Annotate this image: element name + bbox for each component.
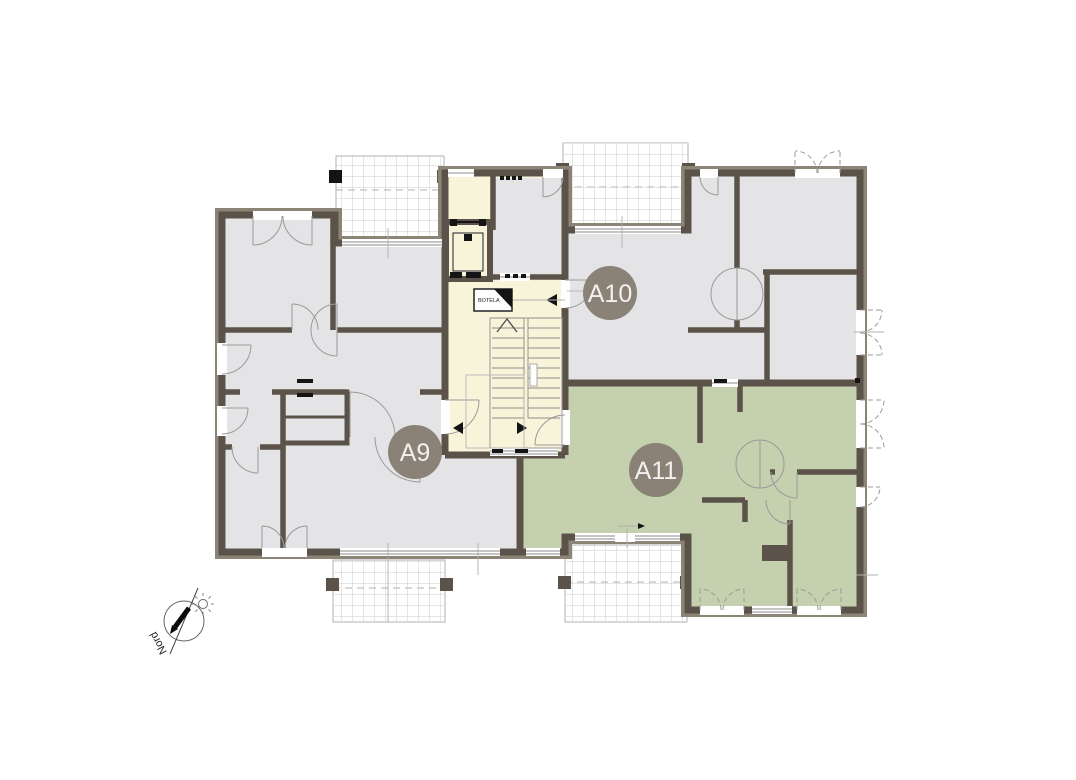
dim-mark bbox=[500, 176, 504, 180]
door-opening bbox=[262, 548, 307, 557]
elevator-sill-mark bbox=[466, 272, 481, 278]
a10-entry-hall bbox=[490, 178, 565, 278]
compass-axis-line bbox=[170, 588, 198, 654]
dim-mark bbox=[297, 379, 313, 383]
door-opening bbox=[253, 211, 312, 220]
door-opening bbox=[441, 400, 450, 434]
apartment-badge-a9[interactable]: A9 bbox=[388, 425, 442, 479]
north-arrow bbox=[175, 608, 189, 627]
balcony-bottom-center bbox=[558, 545, 693, 622]
balcony-post bbox=[440, 578, 453, 591]
north-indicator: Nord bbox=[148, 588, 214, 656]
balcony-top-right bbox=[556, 143, 695, 230]
balcony-grid bbox=[336, 156, 444, 243]
elevator-door-mark bbox=[450, 219, 457, 226]
balcony-top-left bbox=[329, 156, 450, 243]
window bbox=[340, 548, 500, 556]
dim-mark bbox=[505, 274, 510, 278]
dim-mark bbox=[714, 379, 727, 383]
elevator-counterweight bbox=[464, 234, 472, 241]
mailbox-sign: BOTELA bbox=[474, 289, 512, 311]
dim-mark bbox=[506, 176, 510, 180]
apartment-badge-a11[interactable]: A11 bbox=[629, 443, 683, 497]
sign-label: BOTELA bbox=[478, 298, 500, 304]
balcony-grid bbox=[565, 545, 687, 622]
balcony-grid bbox=[333, 560, 445, 622]
door-opening bbox=[795, 169, 840, 178]
dim-mark bbox=[492, 449, 503, 453]
badge-label: A9 bbox=[400, 439, 431, 467]
door-opening bbox=[217, 406, 227, 436]
door-opening bbox=[856, 487, 865, 507]
stair-marker bbox=[530, 364, 537, 386]
elevator-door-mark bbox=[479, 219, 486, 226]
badge-label: A10 bbox=[588, 280, 632, 308]
dim-mark bbox=[297, 393, 313, 397]
elevator-sill-mark bbox=[450, 272, 462, 278]
balcony-grid bbox=[563, 143, 688, 230]
dim-mark bbox=[518, 176, 522, 180]
dim-mark bbox=[512, 176, 516, 180]
elevator bbox=[446, 219, 490, 279]
door-opening bbox=[615, 533, 635, 542]
door-opening bbox=[543, 169, 563, 178]
door-opening bbox=[797, 606, 841, 615]
a11-wall-notch bbox=[762, 545, 790, 561]
balcony-post bbox=[326, 578, 339, 591]
badge-label: A11 bbox=[635, 457, 678, 485]
window bbox=[526, 548, 560, 556]
window bbox=[575, 226, 681, 234]
balcony-post bbox=[558, 576, 571, 589]
door-opening bbox=[217, 343, 227, 375]
door-opening bbox=[700, 606, 744, 615]
balcony-post bbox=[329, 170, 342, 183]
door-opening bbox=[700, 169, 718, 178]
dim-mark bbox=[521, 274, 526, 278]
dim-mark bbox=[855, 378, 860, 383]
dim-mark bbox=[515, 449, 528, 453]
door-opening bbox=[561, 280, 570, 308]
balcony-bottom-left bbox=[326, 560, 453, 622]
door-opening bbox=[856, 310, 865, 355]
window bbox=[342, 239, 442, 247]
north-label: Nord bbox=[148, 630, 170, 657]
window bbox=[752, 606, 792, 614]
dim-mark bbox=[513, 274, 518, 278]
floor-plan-canvas: BOTELA A9 A10 A11 bbox=[0, 0, 1076, 780]
apartment-badge-a10[interactable]: A10 bbox=[583, 266, 637, 320]
